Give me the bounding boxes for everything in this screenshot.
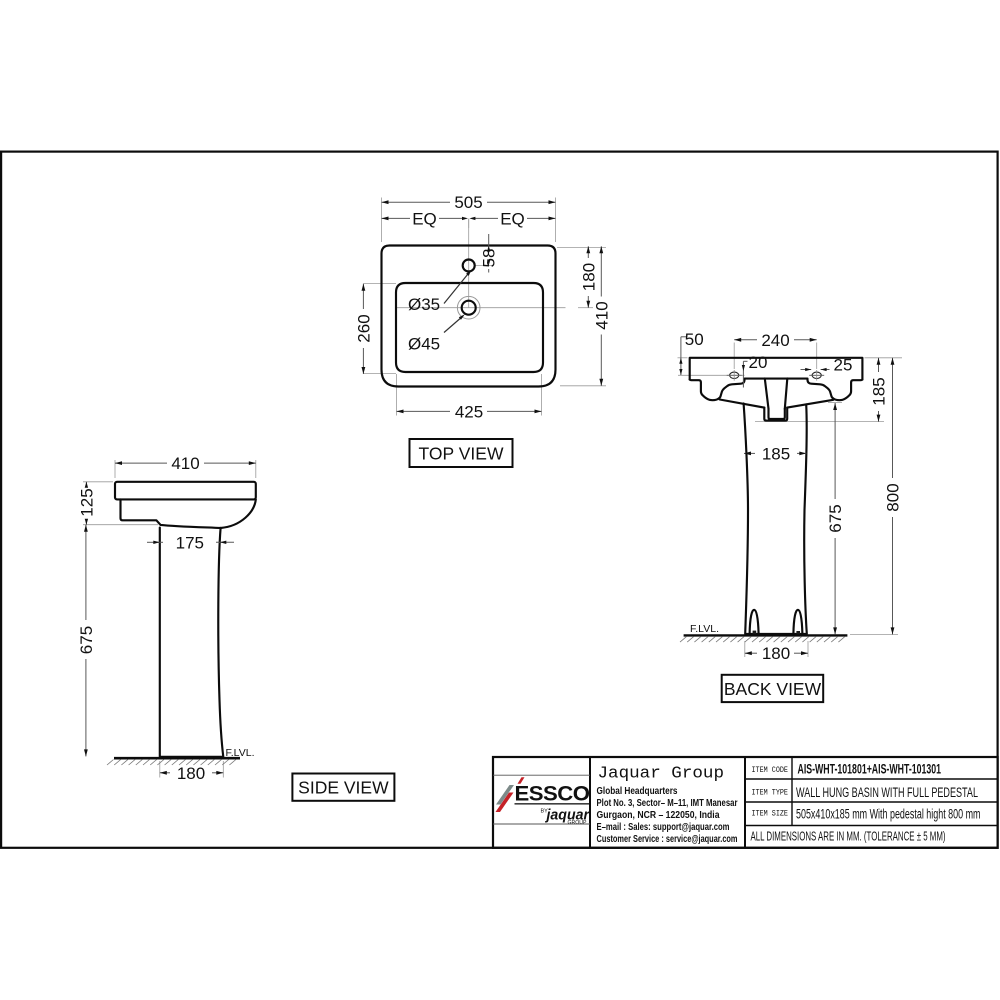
svg-text:BACK VIEW: BACK VIEW [724, 679, 822, 699]
svg-text:F.LVL.: F.LVL. [690, 623, 719, 635]
svg-text:ITEM CODE: ITEM CODE [752, 765, 789, 775]
svg-text:EQ: EQ [500, 209, 525, 228]
svg-text:GROUP: GROUP [568, 820, 588, 826]
svg-text:SIDE VIEW: SIDE VIEW [298, 778, 389, 798]
svg-text:175: 175 [176, 533, 204, 552]
svg-text:WALL HUNG BASIN WITH FULL PEDE: WALL HUNG BASIN WITH FULL PEDESTAL [796, 785, 978, 800]
svg-text:AIS-WHT-101801+AIS-WHT-101301: AIS-WHT-101801+AIS-WHT-101301 [798, 761, 942, 777]
svg-text:185: 185 [762, 444, 790, 463]
svg-text:800: 800 [884, 483, 903, 511]
svg-text:125: 125 [77, 488, 96, 516]
svg-text:E–mail : Sales: support@jaquar: E–mail : Sales: support@jaquar.com [597, 822, 730, 833]
svg-text:ITEM SIZE: ITEM SIZE [752, 809, 789, 819]
svg-text:Ø35: Ø35 [408, 295, 440, 314]
svg-text:Global Headquarters: Global Headquarters [597, 786, 678, 797]
svg-text:185: 185 [870, 377, 889, 405]
svg-text:50: 50 [685, 330, 704, 349]
svg-text:180: 180 [762, 644, 790, 663]
svg-text:25: 25 [834, 356, 853, 375]
svg-text:180: 180 [579, 263, 598, 291]
svg-text:Plot No. 3, Sector– M–11, IMT: Plot No. 3, Sector– M–11, IMT Manesar [597, 798, 738, 809]
svg-text:410: 410 [592, 301, 611, 329]
svg-text:ITEM TYPE: ITEM TYPE [752, 788, 789, 798]
svg-text:410: 410 [171, 454, 199, 473]
svg-text:TOP VIEW: TOP VIEW [419, 444, 504, 464]
svg-text:ESSCO: ESSCO [515, 782, 590, 806]
svg-text:F.LVL.: F.LVL. [226, 747, 255, 759]
svg-text:ALL DIMENSIONS ARE IN MM. (TOL: ALL DIMENSIONS ARE IN MM. (TOLERANCE ± 5… [751, 828, 946, 843]
svg-text:Ø45: Ø45 [408, 335, 440, 354]
svg-text:675: 675 [77, 626, 96, 654]
svg-text:20: 20 [749, 353, 768, 372]
svg-text:58: 58 [480, 249, 499, 268]
svg-text:Gurgaon, NCR – 122050, India: Gurgaon, NCR – 122050, India [597, 810, 720, 821]
svg-text:Jaquar Group: Jaquar Group [598, 764, 725, 783]
svg-text:180: 180 [177, 764, 205, 783]
svg-text:EQ: EQ [412, 209, 437, 228]
svg-text:675: 675 [826, 504, 845, 532]
svg-text:425: 425 [455, 402, 483, 421]
svg-text:505: 505 [454, 193, 482, 212]
svg-text:Customer Service : service@jaq: Customer Service : service@jaquar.com [597, 834, 738, 845]
svg-text:240: 240 [761, 331, 789, 350]
svg-text:260: 260 [354, 314, 373, 342]
svg-text:505x410x185 mm With pedestal h: 505x410x185 mm With pedestal hight 800 m… [796, 806, 981, 821]
